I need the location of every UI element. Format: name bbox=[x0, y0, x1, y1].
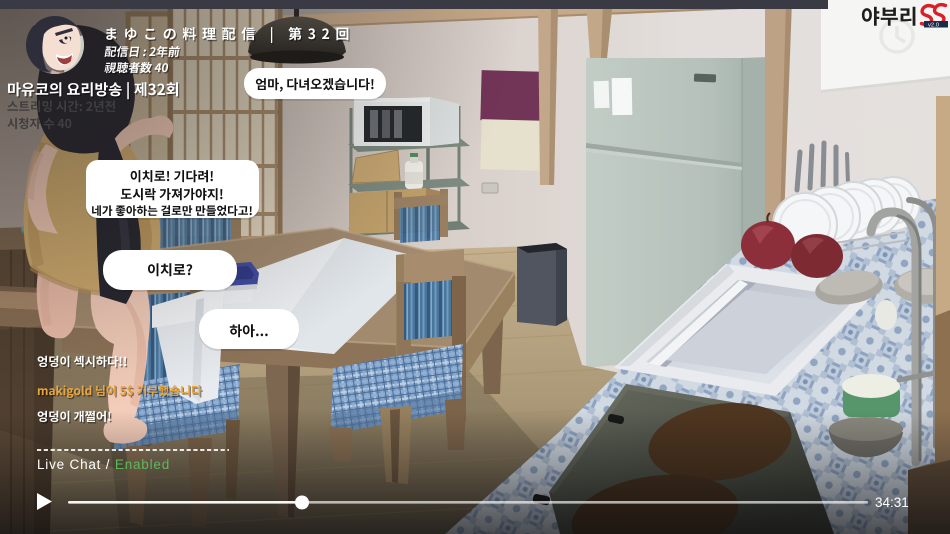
svg-text:34:31: 34:31 bbox=[875, 495, 909, 510]
svg-text:Live Chat / Enabled: Live Chat / Enabled bbox=[37, 457, 170, 472]
svg-text:v2.0: v2.0 bbox=[928, 23, 939, 29]
